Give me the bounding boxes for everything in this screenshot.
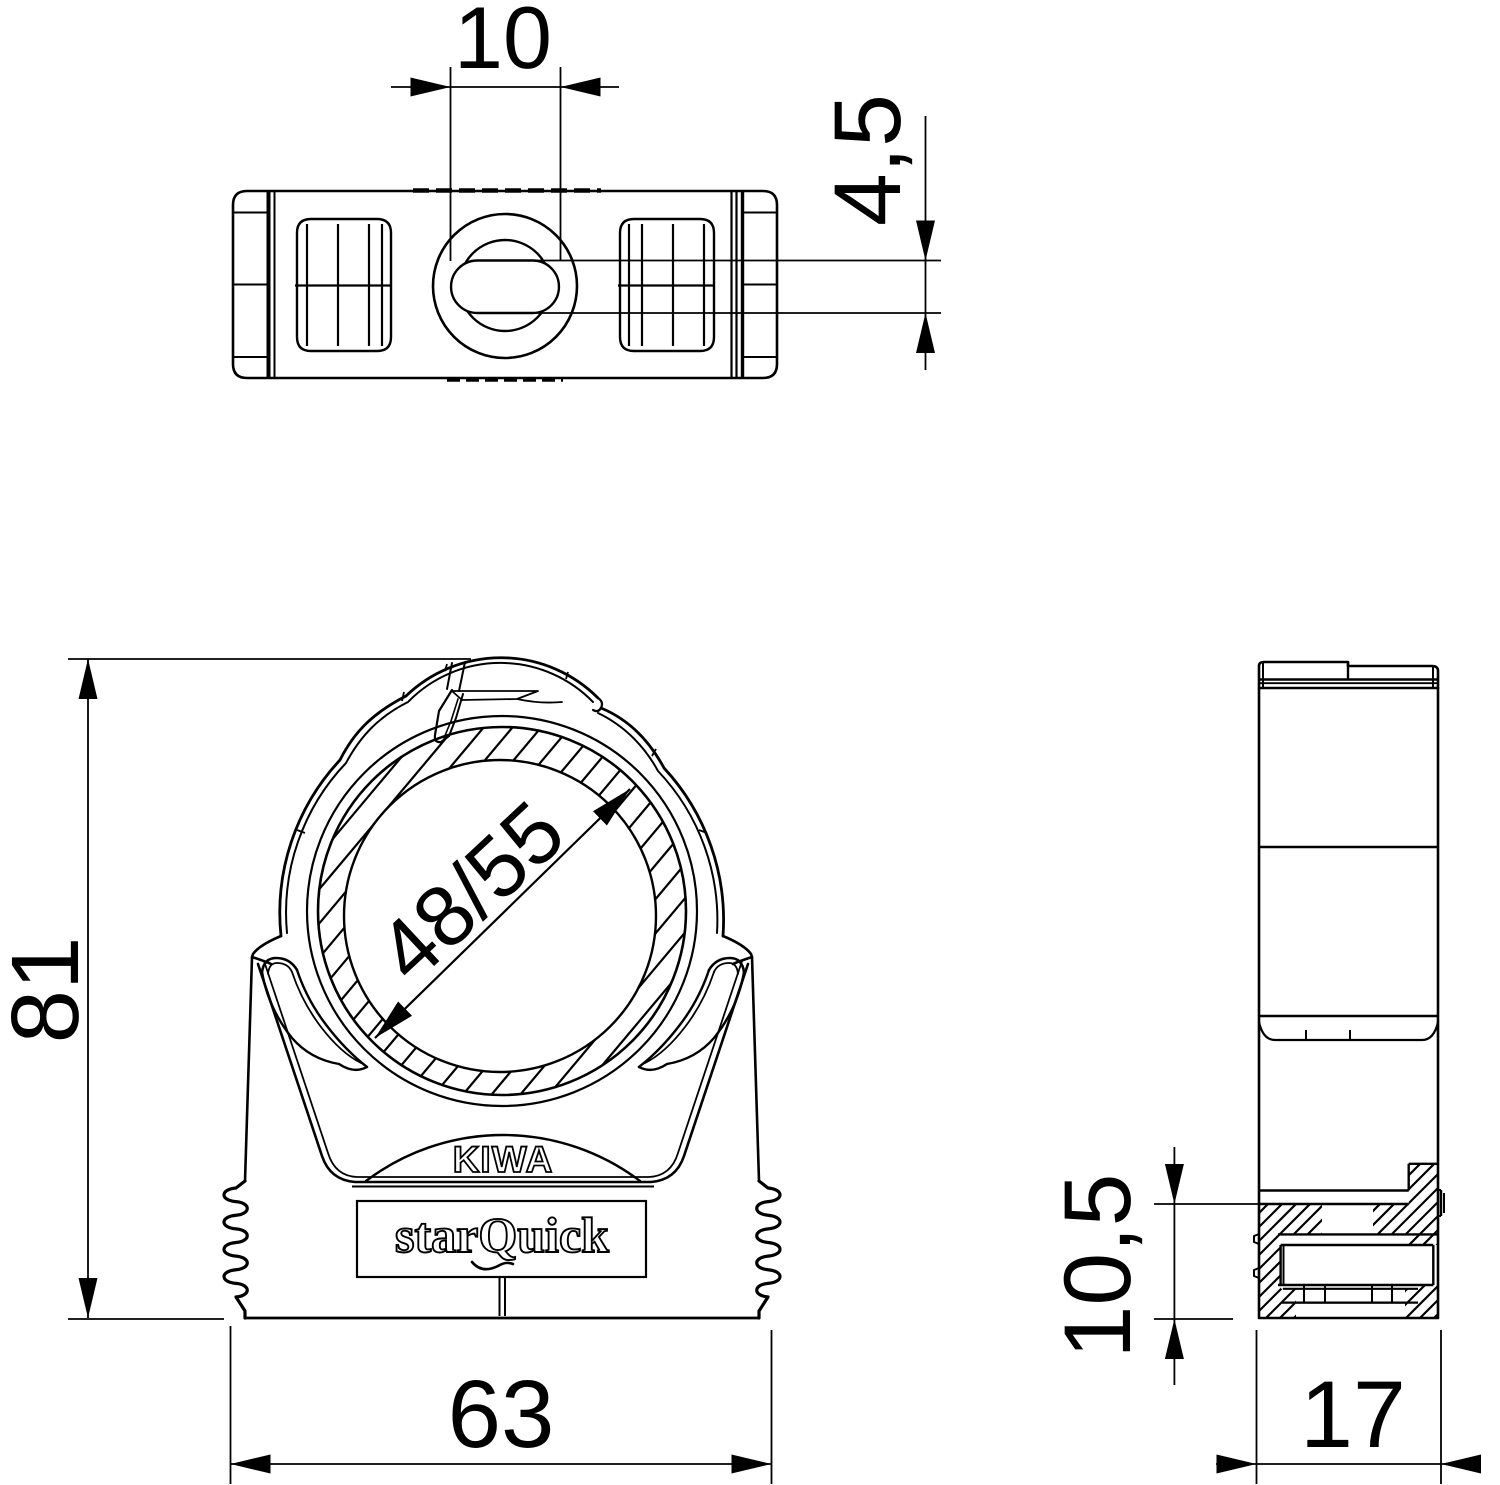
svg-text:48/55: 48/55 xyxy=(360,783,583,1000)
svg-text:81: 81 xyxy=(0,937,99,1044)
svg-text:17: 17 xyxy=(1300,1362,1406,1468)
svg-text:10: 10 xyxy=(454,0,552,87)
svg-text:starQuick: starQuick xyxy=(395,1207,609,1263)
svg-text:KIWA: KIWA xyxy=(453,1139,554,1180)
svg-text:10,5: 10,5 xyxy=(1045,1174,1151,1359)
svg-text:4,5: 4,5 xyxy=(815,94,921,226)
svg-text:63: 63 xyxy=(448,1361,555,1468)
